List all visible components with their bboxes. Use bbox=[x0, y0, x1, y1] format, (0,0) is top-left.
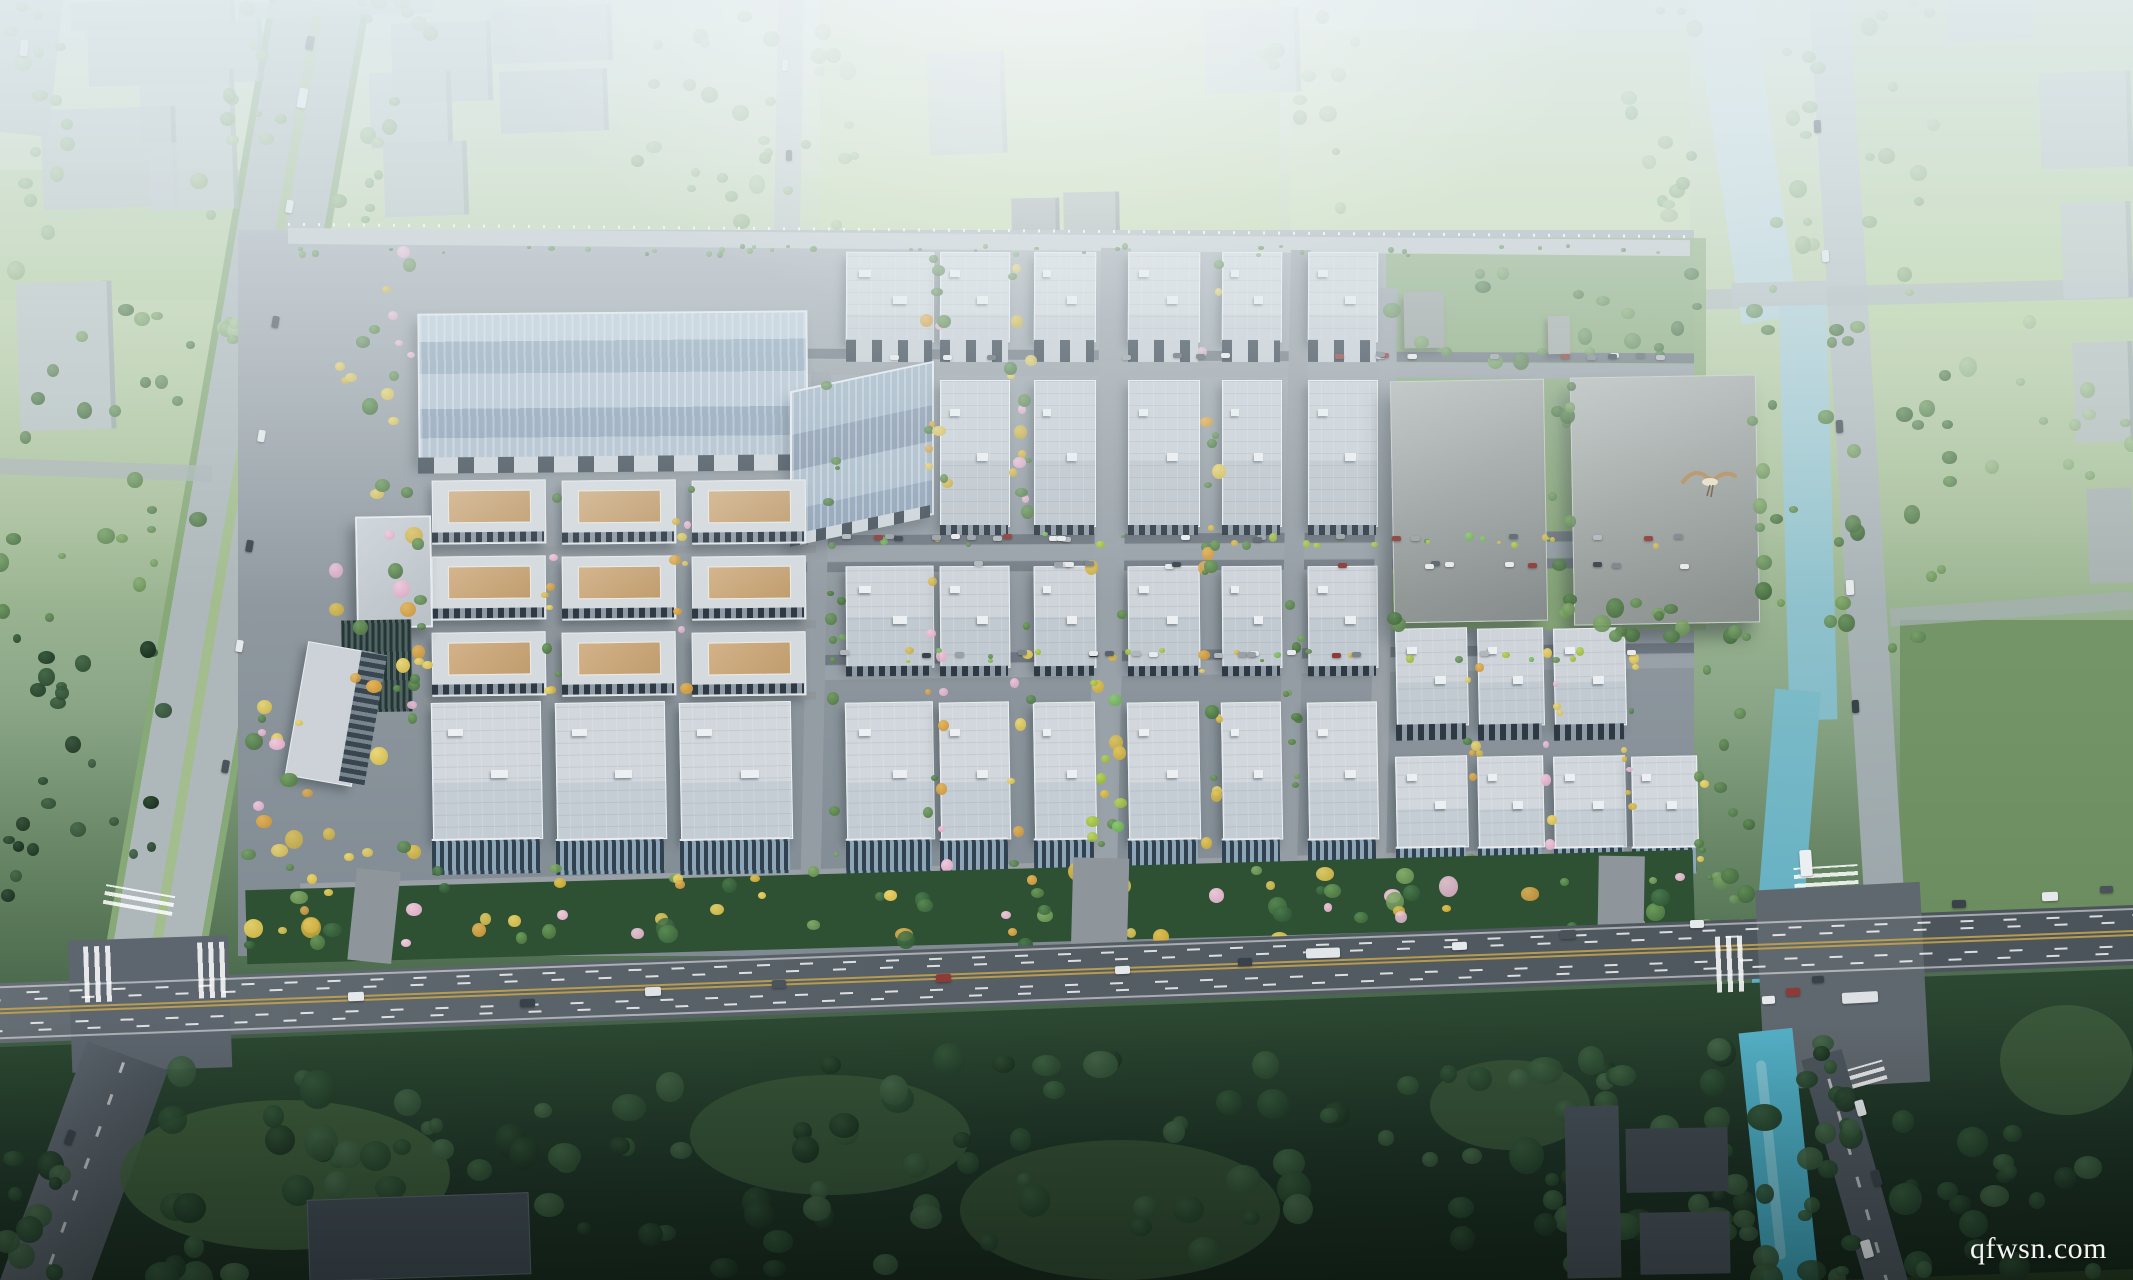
factory-building-roof bbox=[1395, 755, 1469, 848]
factory-building-roof bbox=[1127, 701, 1201, 840]
landscape-trees-blob bbox=[397, 841, 411, 853]
factory-building-roof bbox=[555, 701, 667, 841]
car bbox=[2042, 892, 2058, 902]
parked-car bbox=[1018, 650, 1027, 655]
landscape-trees-blob bbox=[936, 783, 947, 795]
rooftop-unit bbox=[1067, 616, 1077, 624]
canal-trees-blob bbox=[1824, 615, 1837, 628]
factory-building-roof bbox=[1553, 755, 1627, 848]
street-trees-blob bbox=[905, 647, 914, 654]
landscape-trees-blob bbox=[1626, 767, 1633, 772]
factory-building-roof bbox=[1307, 701, 1379, 840]
parked-car bbox=[1214, 653, 1223, 658]
trees-blob bbox=[109, 817, 119, 826]
rooftop-unit bbox=[977, 616, 988, 624]
rooftop-unit bbox=[1067, 770, 1077, 778]
factory-building-facade bbox=[1128, 666, 1198, 677]
trees-blob bbox=[1728, 625, 1741, 639]
landscape-trees-blob bbox=[258, 729, 266, 736]
landscape-trees-blob bbox=[834, 852, 839, 857]
boulevard-trees-blob bbox=[1117, 610, 1127, 619]
landscape-trees-blob bbox=[1285, 600, 1296, 610]
trees-blob bbox=[129, 849, 138, 859]
frontage-trees-blob bbox=[1646, 903, 1664, 920]
rooftop-unit bbox=[1138, 729, 1148, 736]
landscape-trees-blob bbox=[393, 685, 401, 691]
landscape-trees-blob bbox=[1632, 664, 1639, 670]
frontage-trees-blob bbox=[722, 878, 737, 893]
landscape-trees-blob bbox=[1283, 691, 1289, 697]
landscape-trees-blob bbox=[1465, 677, 1471, 683]
landscape-trees-blob bbox=[544, 687, 553, 694]
rooftop-unit bbox=[1318, 729, 1328, 736]
rooftop-unit bbox=[893, 616, 907, 624]
landscape-trees-blob bbox=[280, 773, 298, 787]
bus bbox=[1842, 991, 1879, 1004]
landscape-trees-blob bbox=[257, 700, 272, 714]
landscape-trees-blob bbox=[1026, 695, 1035, 704]
rooftop-unit bbox=[491, 770, 508, 778]
trees-blob bbox=[1734, 708, 1746, 719]
trees-blob bbox=[1729, 895, 1739, 904]
frontage-trees-blob bbox=[290, 891, 308, 904]
car bbox=[1812, 976, 1824, 984]
car bbox=[520, 999, 535, 1008]
frontage-trees-blob bbox=[557, 910, 567, 920]
factory-building-roof bbox=[1477, 627, 1545, 726]
frontage-trees-blob bbox=[1324, 884, 1341, 898]
rooftop-unit bbox=[1254, 770, 1263, 778]
landscape-trees-blob bbox=[1545, 839, 1555, 849]
rooftop-unit bbox=[1254, 616, 1263, 624]
trees-blob bbox=[38, 777, 48, 785]
landscape-trees-blob bbox=[1210, 775, 1218, 781]
frontage-trees-blob bbox=[1439, 876, 1458, 896]
frontage-trees-blob bbox=[1521, 887, 1539, 900]
trees-blob bbox=[1562, 603, 1575, 615]
landscape-trees-blob bbox=[1211, 789, 1223, 802]
car bbox=[348, 992, 364, 1002]
landscape-trees-blob bbox=[1201, 837, 1212, 849]
crosswalk bbox=[1715, 935, 1749, 992]
landscape-trees-blob bbox=[1476, 750, 1482, 756]
trees-blob bbox=[1663, 630, 1680, 643]
trees-blob bbox=[155, 703, 171, 718]
factory-building-facade bbox=[846, 837, 933, 874]
trees-blob bbox=[41, 798, 55, 808]
rooftop-unit bbox=[448, 729, 463, 736]
rooftop-unit bbox=[1434, 676, 1445, 684]
landscape-trees-blob bbox=[353, 620, 368, 635]
street-trees-blob bbox=[988, 659, 992, 663]
landscape-trees-blob bbox=[285, 830, 303, 849]
factory-building-facade bbox=[1308, 666, 1376, 677]
landscape-trees-blob bbox=[1291, 713, 1302, 721]
frontage-trees-blob bbox=[432, 866, 443, 877]
rooftop-unit bbox=[1406, 774, 1416, 781]
frontage-trees-blob bbox=[244, 919, 263, 938]
landscape-trees-blob bbox=[829, 806, 840, 816]
frontage-trees-blob bbox=[1273, 906, 1292, 921]
frontage-trees-blob bbox=[324, 889, 333, 895]
factory-building-facade bbox=[940, 666, 1008, 677]
trees-blob bbox=[1888, 643, 1897, 653]
trees-blob bbox=[55, 686, 69, 700]
landscape-trees-blob bbox=[542, 643, 552, 654]
frontage-trees-blob bbox=[406, 903, 421, 916]
frontage-trees-blob bbox=[1001, 911, 1011, 919]
frontage-trees-blob bbox=[750, 875, 759, 882]
landscape-trees-blob bbox=[1013, 826, 1023, 836]
factory-building-facade bbox=[846, 666, 932, 677]
frontage-trees-blob bbox=[917, 899, 932, 913]
landscape-trees-blob bbox=[1700, 780, 1709, 787]
sun-glare bbox=[420, 0, 1670, 360]
street-trees-blob bbox=[1274, 652, 1282, 658]
parked-car bbox=[1332, 653, 1341, 658]
factory-building-roof bbox=[1631, 755, 1699, 848]
landscape-trees-blob bbox=[1205, 705, 1219, 718]
car bbox=[1690, 920, 1704, 928]
landscape-trees-blob bbox=[1541, 774, 1551, 786]
frontage-trees-blob bbox=[1354, 912, 1368, 924]
bus bbox=[1306, 947, 1340, 958]
street-trees-blob bbox=[830, 657, 835, 663]
landscape-trees-blob bbox=[412, 645, 425, 659]
car bbox=[1560, 930, 1576, 940]
courtyard-building-terrace bbox=[707, 641, 790, 675]
landscape-trees-blob bbox=[1475, 663, 1483, 672]
street-trees-blob bbox=[1529, 657, 1533, 661]
factory-building-roof bbox=[679, 701, 793, 841]
factory-building-roof bbox=[1221, 701, 1283, 840]
frontage-trees-blob bbox=[323, 923, 342, 937]
landscape-trees-blob bbox=[938, 720, 949, 732]
landscape-trees-blob bbox=[241, 849, 255, 860]
street-trees-blob bbox=[1305, 649, 1312, 654]
rooftop-unit bbox=[859, 729, 871, 736]
trees-blob bbox=[0, 604, 10, 619]
frontage-trees-blob bbox=[1008, 928, 1017, 936]
car bbox=[1952, 900, 1966, 908]
trees-blob bbox=[38, 651, 55, 664]
rooftop-unit bbox=[1166, 616, 1177, 624]
rooftop-unit bbox=[1434, 801, 1445, 809]
frontage-trees-blob bbox=[1396, 868, 1414, 884]
parked-car bbox=[1105, 651, 1114, 656]
trees-blob bbox=[16, 817, 29, 830]
courtyard-building-facade bbox=[692, 683, 804, 695]
rooftop-unit bbox=[1564, 647, 1574, 654]
rooftop-unit bbox=[1513, 801, 1523, 809]
parked-car bbox=[955, 652, 964, 657]
watermark: qfwsn.com bbox=[1970, 1232, 2107, 1266]
trees-blob bbox=[1743, 819, 1754, 829]
car bbox=[1762, 996, 1775, 1005]
factory-building-roof bbox=[431, 701, 543, 841]
frontage-trees-blob bbox=[897, 931, 915, 949]
car bbox=[1852, 700, 1860, 713]
rooftop-unit bbox=[1488, 774, 1497, 781]
factory-building-facade bbox=[432, 837, 541, 875]
frontage-trees-blob bbox=[1649, 877, 1657, 884]
rooftop-unit bbox=[1345, 616, 1356, 624]
rooftop-unit bbox=[696, 729, 712, 736]
trees-blob bbox=[143, 796, 159, 809]
car bbox=[1238, 958, 1252, 966]
rooftop-unit bbox=[572, 729, 587, 736]
trees-blob bbox=[1714, 782, 1728, 793]
frontage-trees-blob bbox=[675, 880, 685, 888]
courtyard-building-facade bbox=[562, 683, 674, 695]
frontage-trees-blob bbox=[542, 924, 556, 939]
trees-blob bbox=[1703, 665, 1712, 674]
boulevard-trees-blob bbox=[1090, 680, 1098, 686]
frontage-trees-blob bbox=[807, 920, 819, 929]
parked-car bbox=[840, 650, 849, 655]
landscape-trees-blob bbox=[370, 747, 388, 766]
car bbox=[1786, 988, 1800, 997]
frontage-trees-blob bbox=[472, 923, 486, 937]
factory-building-facade bbox=[556, 837, 665, 875]
frontage-trees-blob bbox=[300, 906, 309, 915]
crosswalk bbox=[83, 945, 117, 1002]
rooftop-unit bbox=[1345, 770, 1356, 778]
landscape-trees-blob bbox=[555, 671, 562, 677]
boulevard-trees-blob bbox=[1096, 773, 1106, 783]
parked-car bbox=[1480, 651, 1489, 656]
courtyard-building-facade bbox=[432, 607, 544, 618]
landscape-trees-blob bbox=[362, 848, 373, 857]
landscape-trees-blob bbox=[1622, 756, 1627, 762]
factory-building-roof bbox=[845, 701, 935, 841]
factory-building-facade bbox=[680, 837, 791, 875]
trees-blob bbox=[38, 668, 55, 686]
rooftop-unit bbox=[893, 770, 907, 778]
trees-blob bbox=[1728, 808, 1738, 817]
rooftop-unit bbox=[615, 770, 632, 778]
parked-car bbox=[1352, 652, 1361, 657]
landscape-trees-blob bbox=[838, 634, 846, 641]
frontage-trees-blob bbox=[1651, 889, 1670, 905]
landscape-trees-blob bbox=[1198, 650, 1210, 660]
trees-blob bbox=[1609, 630, 1621, 642]
car bbox=[645, 987, 661, 997]
frontage-trees-blob bbox=[480, 913, 491, 925]
landscape-trees-blob bbox=[350, 673, 361, 683]
landscape-trees-blob bbox=[1628, 803, 1637, 810]
crosswalk bbox=[197, 941, 231, 998]
aerial-site-render: qfwsn.com bbox=[0, 0, 2133, 1280]
factory-building-roof bbox=[939, 701, 1011, 840]
courtyard-building-facade bbox=[562, 607, 674, 618]
trees-blob bbox=[70, 822, 86, 837]
landscape-trees-blob bbox=[269, 738, 285, 750]
trees-blob bbox=[75, 655, 92, 672]
rooftop-unit bbox=[1592, 676, 1603, 684]
landscape-trees-blob bbox=[396, 658, 410, 673]
rooftop-unit bbox=[1043, 729, 1052, 736]
parked-car bbox=[922, 653, 931, 658]
landscape-trees-blob bbox=[1015, 718, 1026, 731]
rooftop-unit bbox=[1513, 676, 1523, 684]
boulevard-trees-blob bbox=[1101, 755, 1110, 763]
landscape-trees-blob bbox=[1007, 778, 1014, 784]
landscape-trees-blob bbox=[546, 605, 552, 610]
rooftop-unit bbox=[740, 770, 758, 778]
factory-building-roof bbox=[1477, 755, 1545, 848]
frontage-trees-blob bbox=[401, 939, 411, 947]
frontage-trees-blob bbox=[307, 874, 317, 883]
landscape-trees-blob bbox=[1463, 738, 1472, 746]
factory-building-facade bbox=[1478, 723, 1542, 740]
street-trees-blob bbox=[1406, 655, 1413, 663]
street-trees-blob bbox=[1035, 649, 1040, 655]
parked-car bbox=[1627, 650, 1636, 655]
landscape-trees-blob bbox=[295, 720, 303, 726]
trees-blob bbox=[1387, 612, 1402, 625]
rooftop-unit bbox=[1406, 647, 1416, 654]
landscape-trees-blob bbox=[417, 623, 426, 630]
parked-car bbox=[1149, 652, 1158, 657]
courtyard-building-facade bbox=[432, 683, 544, 695]
rooftop-unit bbox=[1166, 770, 1177, 778]
parked-car bbox=[1132, 651, 1141, 656]
frontage-trees-blob bbox=[1560, 878, 1569, 886]
trees-blob bbox=[3, 836, 15, 845]
trees-blob bbox=[1654, 611, 1663, 621]
frontage-trees-blob bbox=[286, 864, 294, 871]
landscape-trees-blob bbox=[1697, 856, 1704, 862]
truck bbox=[1799, 850, 1813, 877]
frontage-trees-blob bbox=[808, 866, 819, 877]
factory-building-roof bbox=[1553, 627, 1627, 726]
rooftop-unit bbox=[1642, 774, 1651, 781]
car bbox=[2100, 886, 2113, 893]
landscape-trees-blob bbox=[258, 715, 266, 723]
frontage-trees-blob bbox=[1027, 875, 1037, 884]
trees-blob bbox=[45, 613, 54, 622]
trees-blob bbox=[1719, 739, 1730, 751]
parked-car bbox=[1287, 650, 1296, 655]
parked-car bbox=[1238, 652, 1247, 657]
street-trees-blob bbox=[1125, 649, 1130, 655]
trees-blob bbox=[1664, 604, 1678, 614]
car bbox=[1115, 966, 1130, 975]
trees-blob bbox=[1910, 631, 1925, 643]
frontage-trees-blob bbox=[1251, 866, 1262, 875]
factory-building-facade bbox=[1034, 666, 1094, 677]
street-trees-blob bbox=[1260, 659, 1264, 662]
landscape-trees-blob bbox=[271, 844, 288, 857]
landscape-trees-blob bbox=[825, 613, 837, 625]
landscape-trees-blob bbox=[1547, 815, 1557, 824]
trees-blob bbox=[13, 841, 25, 851]
boulevard-trees-blob bbox=[1113, 746, 1126, 760]
courtyard-building-facade bbox=[692, 607, 804, 618]
rooftop-unit bbox=[977, 770, 988, 778]
frontage-trees-blob bbox=[884, 890, 898, 901]
frontage-trees-blob bbox=[1266, 881, 1275, 890]
frontage-trees-blob bbox=[508, 915, 520, 927]
courtyard-building-terrace bbox=[447, 641, 530, 675]
landscape-trees-blob bbox=[366, 680, 382, 693]
rooftop-unit bbox=[950, 729, 960, 736]
frontage-trees-blob bbox=[244, 941, 255, 949]
landscape-trees-blob bbox=[939, 688, 948, 697]
courtyard-building-terrace bbox=[577, 641, 660, 675]
parked-car bbox=[1089, 651, 1098, 656]
landscape-trees-blob bbox=[680, 683, 692, 694]
trees-blob bbox=[13, 634, 21, 643]
rooftop-unit bbox=[1231, 729, 1239, 736]
rooftop-unit bbox=[1564, 774, 1574, 781]
factory-building-facade bbox=[1222, 666, 1280, 677]
parked-car bbox=[1247, 652, 1256, 657]
trees-blob bbox=[140, 641, 156, 659]
car bbox=[936, 974, 951, 983]
street-trees-blob bbox=[1502, 652, 1509, 658]
landscape-trees-blob bbox=[1288, 739, 1295, 745]
car bbox=[772, 980, 786, 988]
landscape-trees-blob bbox=[673, 608, 682, 615]
landscape-trees-blob bbox=[1292, 782, 1299, 788]
factory-building-roof bbox=[1395, 627, 1469, 726]
frontage-trees-blob bbox=[658, 925, 678, 943]
trees-blob bbox=[1721, 868, 1739, 884]
landscape-trees-blob bbox=[1553, 703, 1561, 709]
factory-building-facade bbox=[1396, 723, 1466, 740]
rooftop-unit bbox=[1592, 801, 1603, 809]
vignette bbox=[0, 1020, 2133, 1280]
car bbox=[1452, 942, 1467, 951]
rooftop-unit bbox=[1667, 801, 1677, 809]
landscape-trees-blob bbox=[410, 674, 419, 684]
factory-building-facade bbox=[1554, 723, 1624, 740]
frontage-trees-blob bbox=[439, 883, 449, 893]
